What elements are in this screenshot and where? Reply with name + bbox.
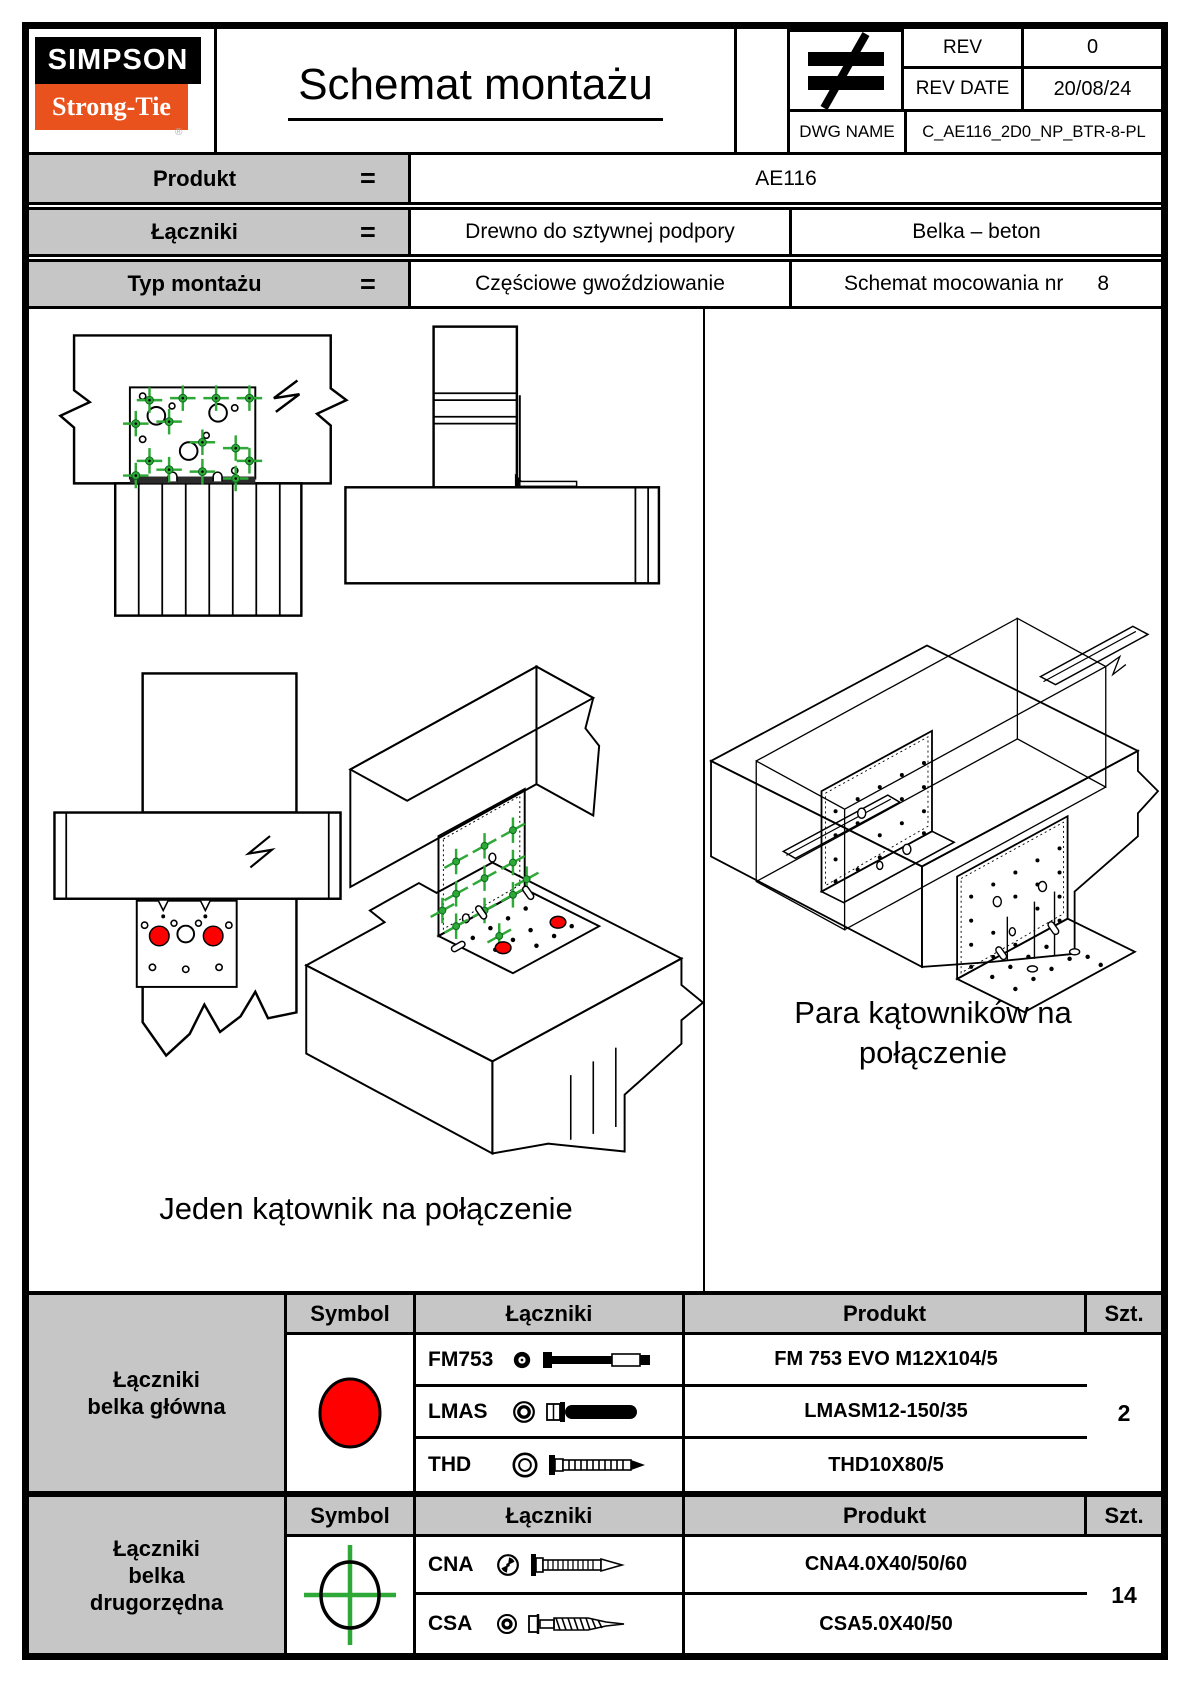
main-beam-qty: 2	[1087, 1335, 1161, 1491]
fastener-row-lmas: LMAS	[416, 1387, 685, 1439]
product-info-table: Produkt = AE116 Łączniki = Drewno do szt…	[29, 155, 1161, 309]
pair-bracket-panel: Para kątowników na połączenie	[705, 309, 1161, 1291]
mount-scheme-text: Schemat mocowania nr	[844, 272, 1063, 296]
product-label: Produkt	[29, 166, 360, 192]
fastener-code: CSA	[428, 1612, 486, 1636]
product-value: AE116	[411, 155, 1161, 202]
pair-bracket-caption-line1: Para kątowników na	[705, 995, 1161, 1031]
lmas-anchor-icon	[546, 1400, 642, 1424]
sheet-title: Schemat montażu	[288, 60, 663, 121]
fastener-row-fm753: FM753	[416, 1335, 685, 1387]
pair-bracket-drawing	[705, 309, 1161, 1291]
rev-label: REV	[904, 29, 1021, 69]
transparent-beam-wireframe	[756, 618, 1126, 929]
fastener-row-thd: THD	[416, 1439, 685, 1491]
info-row-fasteners: Łączniki = Drewno do sztywnej podpory Be…	[29, 207, 1161, 257]
product-header: Produkt	[685, 1295, 1087, 1335]
main-fastener-red-dot	[550, 916, 566, 928]
projection-symbol-cell	[787, 29, 904, 112]
fastener-row-cna: CNA	[416, 1537, 685, 1595]
side-view-drawing	[345, 327, 658, 584]
fasteners-value-left: Drewno do sztywnej podpory	[411, 210, 792, 254]
mount-scheme-number: 8	[1097, 272, 1109, 296]
revision-block: REV 0 REV DATE 20/08/24 DWG NAME C_AE116…	[737, 29, 1161, 152]
fastener-row-csa: CSA	[416, 1595, 685, 1653]
plan-view-drawing	[54, 673, 340, 1055]
not-equal-projection-icon	[798, 32, 894, 110]
drawing-area: Jeden kątownik na połączenie	[29, 309, 1161, 1295]
fasteners-header: Łączniki	[416, 1295, 685, 1335]
sheet-title-cell: Schemat montażu	[217, 29, 737, 152]
csa-head-icon	[496, 1613, 518, 1635]
front-view-drawing	[60, 335, 346, 615]
qty-header: Szt.	[1087, 1497, 1161, 1537]
single-bracket-caption: Jeden kątownik na połączenie	[29, 1191, 703, 1227]
fastener-code: FM753	[428, 1348, 502, 1372]
rev-date-value: 20/08/24	[1021, 69, 1161, 112]
thd-head-icon	[512, 1452, 538, 1478]
fm753-head-icon	[512, 1350, 532, 1370]
product-header: Produkt	[685, 1497, 1087, 1537]
dwg-name-value: C_AE116_2D0_NP_BTR-8-PL	[904, 112, 1161, 152]
symbol-header: Symbol	[287, 1295, 416, 1335]
single-bracket-panel: Jeden kątownik na połączenie	[29, 309, 705, 1291]
fastener-product: THD10X80/5	[685, 1439, 1087, 1491]
equals-sign: =	[360, 269, 408, 300]
fastener-product: CSA5.0X40/50	[685, 1595, 1087, 1653]
iso-pair-bracket-drawing	[711, 618, 1158, 1012]
thd-screw-icon	[548, 1453, 648, 1477]
brand-logo-strongtie: Strong-Tie	[35, 84, 188, 130]
main-fastener-red-dot	[149, 926, 169, 946]
single-bracket-drawings	[29, 309, 703, 1291]
fasteners-value-right: Belka – beton	[792, 210, 1161, 254]
green-crosshair-symbol-icon	[300, 1543, 400, 1647]
csa-screw-icon	[528, 1612, 632, 1636]
mount-type-value-left: Częściowe gwoździowanie	[411, 262, 792, 306]
info-row-product: Produkt = AE116	[29, 155, 1161, 205]
mount-scheme-cell: Schemat mocowania nr 8	[792, 262, 1161, 306]
secondary-beam-symbol-cell	[287, 1537, 416, 1653]
registered-mark: ®	[175, 130, 214, 136]
fastener-product: LMASM12-150/35	[685, 1387, 1087, 1439]
rev-value: 0	[1021, 29, 1161, 69]
fasteners-label: Łączniki	[29, 219, 360, 245]
secondary-beam-fasteners-table: Łączniki belka drugorzędna Symbol Łączni…	[29, 1497, 1161, 1653]
qty-header: Szt.	[1087, 1295, 1161, 1335]
pair-bracket-caption-line2: połączenie	[705, 1035, 1161, 1071]
brand-logo: SIMPSON Strong-Tie ®	[29, 29, 217, 152]
rev-date-label: REV DATE	[904, 69, 1021, 112]
main-beam-table-label: Łączniki belka główna	[29, 1295, 287, 1491]
fastener-code: LMAS	[428, 1400, 502, 1424]
secondary-beam-table-label: Łączniki belka drugorzędna	[29, 1497, 287, 1653]
main-beam-fasteners-table: Łączniki belka główna Symbol Łączniki Pr…	[29, 1295, 1161, 1491]
red-circle-symbol-icon	[313, 1371, 387, 1455]
fastener-code: CNA	[428, 1553, 486, 1577]
cna-nail-icon	[530, 1553, 630, 1577]
symbol-header: Symbol	[287, 1497, 416, 1537]
iso-single-bracket-drawing	[306, 667, 703, 1154]
fastener-product: CNA4.0X40/50/60	[685, 1537, 1087, 1595]
equals-sign: =	[360, 163, 408, 194]
main-fastener-red-dot	[203, 926, 223, 946]
equals-sign: =	[360, 217, 408, 248]
mount-type-label: Typ montażu	[29, 271, 360, 297]
brand-logo-simpson: SIMPSON	[35, 37, 201, 84]
fasteners-header: Łączniki	[416, 1497, 685, 1537]
info-row-mount-type: Typ montażu = Częściowe gwoździowanie Sc…	[29, 259, 1161, 309]
secondary-beam-qty: 14	[1087, 1537, 1161, 1653]
lmas-head-icon	[512, 1400, 536, 1424]
fastener-code: THD	[428, 1453, 502, 1477]
fm753-bolt-icon	[542, 1349, 654, 1371]
title-block: SIMPSON Strong-Tie ® Schemat montażu REV…	[29, 29, 1161, 155]
fastener-product: FM 753 EVO M12X104/5	[685, 1335, 1087, 1387]
dwg-name-label: DWG NAME	[787, 112, 904, 152]
main-fastener-red-dot	[495, 942, 511, 954]
sheet-frame: SIMPSON Strong-Tie ® Schemat montażu REV…	[22, 22, 1168, 1660]
main-beam-symbol-cell	[287, 1335, 416, 1491]
cna-head-icon	[496, 1553, 520, 1577]
